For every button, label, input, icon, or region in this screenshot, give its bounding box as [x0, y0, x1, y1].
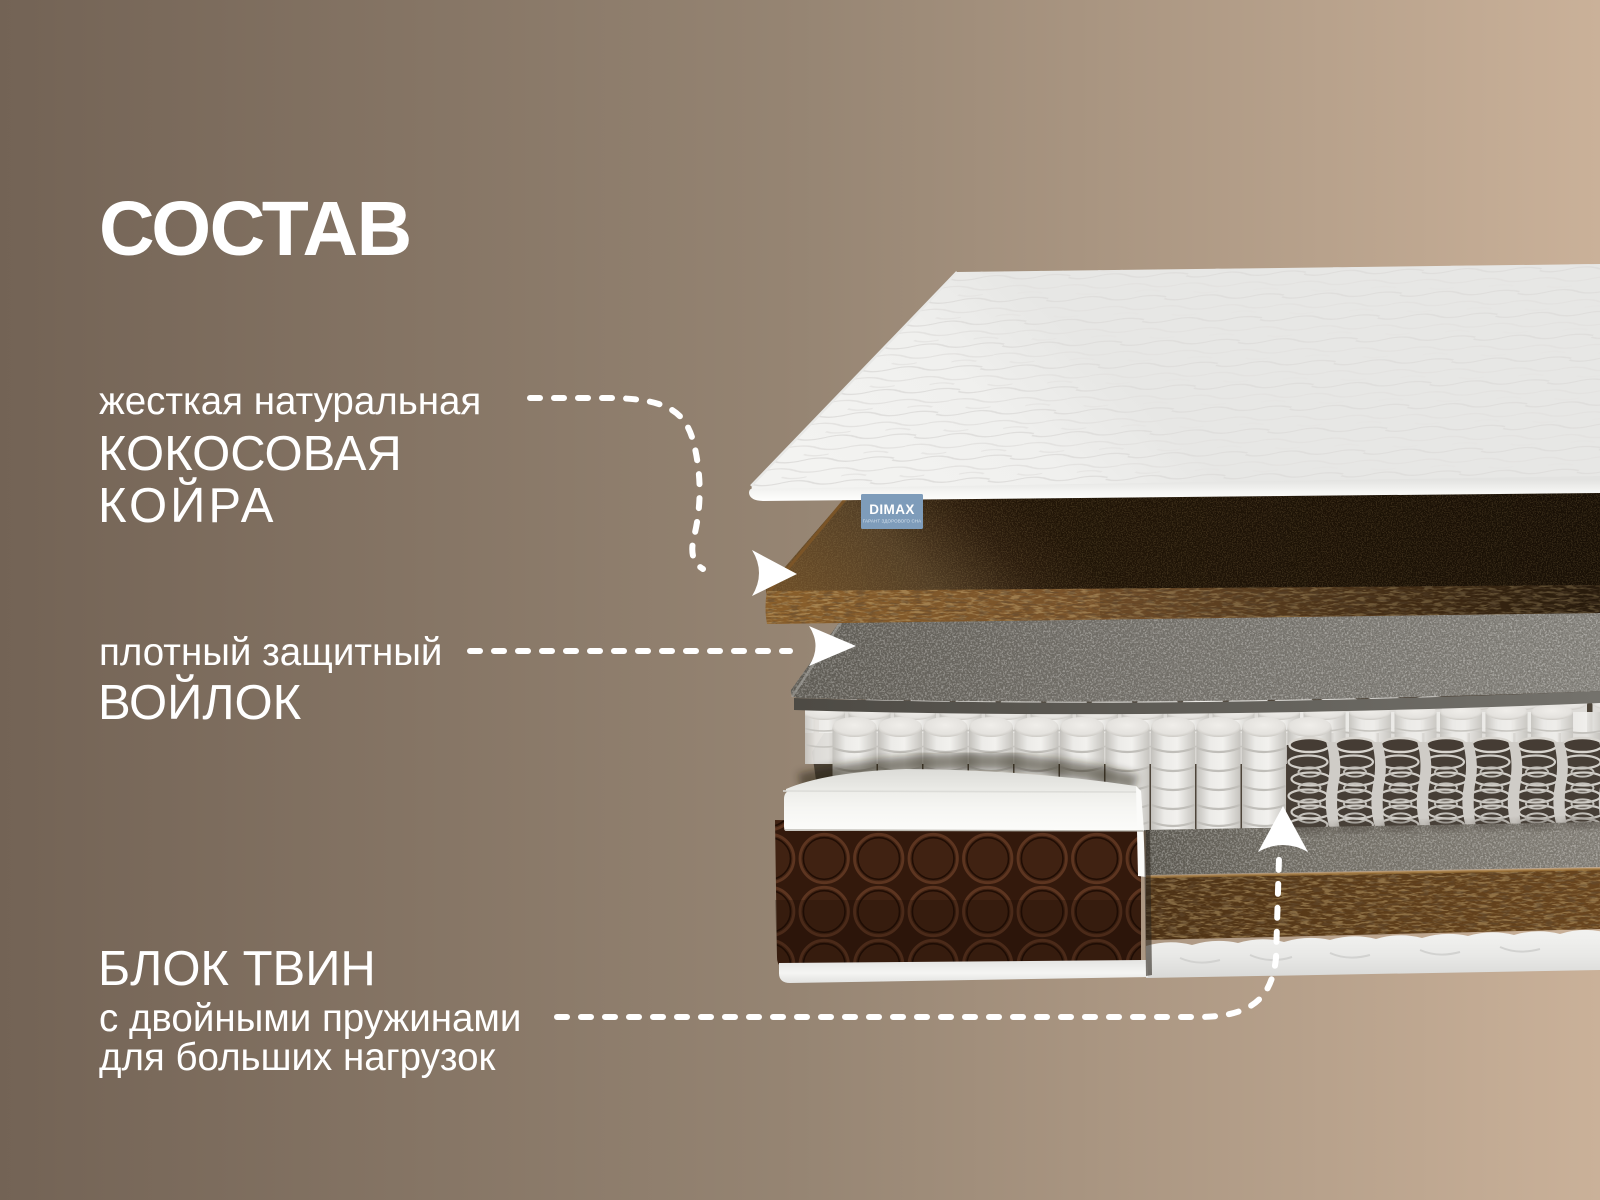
svg-text:ВОЙЛОК: ВОЙЛОК	[98, 675, 302, 730]
svg-text:с двойными пружинами: с двойными пружинами	[99, 997, 521, 1040]
svg-text:СОСТАВ: СОСТАВ	[99, 186, 411, 272]
svg-text:ГАРАНТ ЗДОРОВОГО СНА: ГАРАНТ ЗДОРОВОГО СНА	[863, 519, 922, 524]
svg-text:жесткая натуральная: жесткая натуральная	[99, 380, 481, 423]
svg-text:DIMAX: DIMAX	[869, 502, 915, 517]
svg-text:для больших нагрузок: для больших нагрузок	[99, 1036, 497, 1079]
svg-text:плотный защитный: плотный защитный	[99, 631, 442, 674]
svg-text:КОЙРА: КОЙРА	[98, 478, 276, 533]
svg-text:КОКОСОВАЯ: КОКОСОВАЯ	[98, 427, 402, 481]
svg-text:БЛОК ТВИН: БЛОК ТВИН	[98, 942, 376, 996]
